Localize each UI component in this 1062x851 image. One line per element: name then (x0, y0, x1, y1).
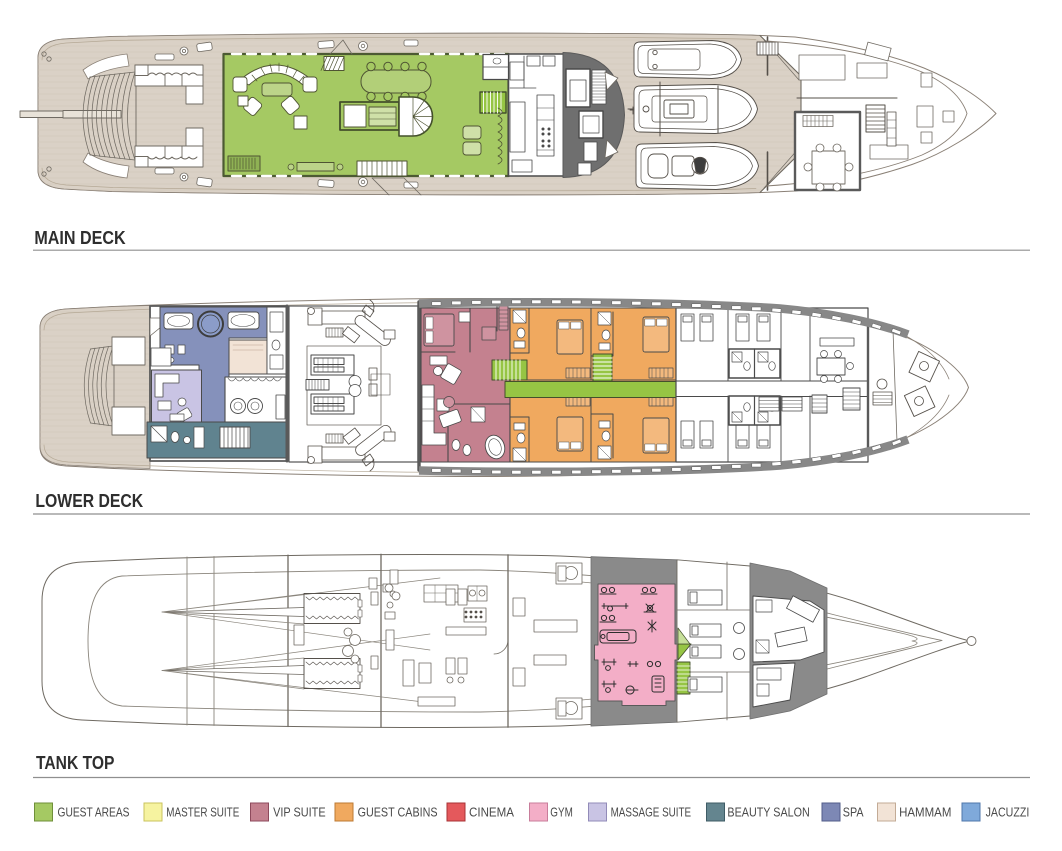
svg-text:HAMMAM: HAMMAM (899, 806, 951, 820)
svg-text:VIP SUITE: VIP SUITE (273, 806, 326, 820)
svg-text:CINEMA: CINEMA (469, 806, 515, 820)
svg-text:MASSAGE SUITE: MASSAGE SUITE (611, 806, 692, 820)
svg-text:MAIN DECK: MAIN DECK (34, 228, 125, 248)
svg-text:GUEST CABINS: GUEST CABINS (358, 806, 438, 820)
svg-text:TANK TOP: TANK TOP (36, 753, 114, 773)
svg-text:GUEST AREAS: GUEST AREAS (58, 806, 130, 820)
svg-text:GYM: GYM (550, 806, 573, 820)
svg-text:MASTER SUITE: MASTER SUITE (166, 806, 239, 820)
svg-text:BEAUTY SALON: BEAUTY SALON (727, 806, 809, 820)
svg-text:JACUZZI: JACUZZI (986, 806, 1030, 820)
svg-text:LOWER DECK: LOWER DECK (35, 491, 143, 511)
svg-text:SPA: SPA (843, 806, 864, 820)
